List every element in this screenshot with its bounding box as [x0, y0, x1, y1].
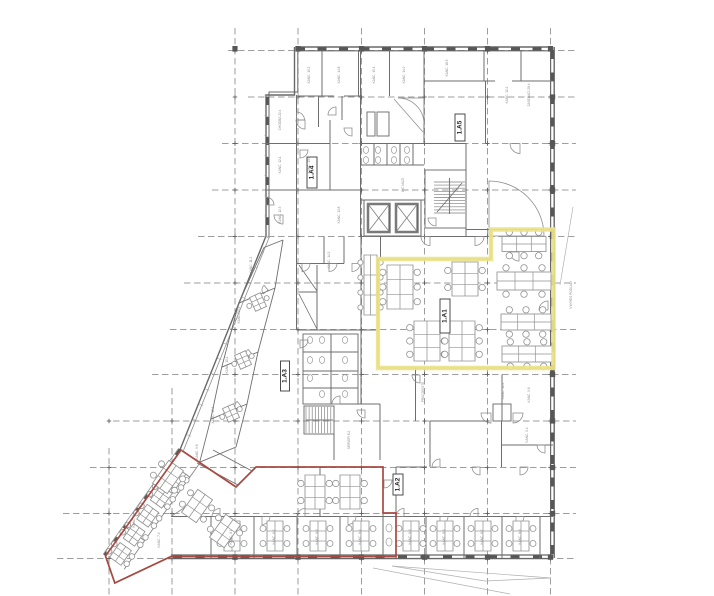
svg-text:KANC. 8.5: KANC. 8.5: [408, 529, 412, 544]
svg-text:KANC. 8.2: KANC. 8.2: [272, 529, 276, 544]
svg-text:1.A5: 1.A5: [457, 120, 464, 134]
svg-text:KANC. 12.2: KANC. 12.2: [505, 86, 509, 103]
svg-text:KANC. 12.3: KANC. 12.3: [278, 206, 282, 223]
svg-text:KANC. 8.6: KANC. 8.6: [442, 529, 446, 544]
svg-text:KANC. 9.8: KANC. 9.8: [195, 444, 199, 459]
svg-text:CHODBA 22.4: CHODBA 22.4: [278, 110, 282, 131]
svg-text:KANC. 13.6: KANC. 13.6: [307, 156, 311, 173]
svg-text:KANC. 10.8: KANC. 10.8: [237, 306, 241, 323]
svg-text:KANC. 8.3: KANC. 8.3: [315, 529, 319, 544]
svg-text:KANC. 9.4: KANC. 9.4: [525, 427, 529, 442]
svg-text:KANC. 9.6: KANC. 9.6: [527, 387, 531, 402]
svg-text:1.A1: 1.A1: [442, 309, 449, 323]
svg-text:ZASEDACI 28.4: ZASEDACI 28.4: [527, 83, 531, 106]
svg-text:KANC. 7.4: KANC. 7.4: [157, 532, 161, 547]
svg-text:KANC. 8.8: KANC. 8.8: [518, 529, 522, 544]
svg-text:KANC. 13.8: KANC. 13.8: [337, 206, 341, 223]
svg-text:KANC. 15.2: KANC. 15.2: [307, 66, 311, 83]
svg-text:VYKRES PODLAZI: VYKRES PODLAZI: [569, 281, 573, 309]
svg-text:KANC. 10.1: KANC. 10.1: [211, 406, 215, 423]
svg-text:1.A2: 1.A2: [395, 477, 402, 491]
svg-text:KANC. 8.4: KANC. 8.4: [358, 529, 362, 544]
svg-text:KANC. 10.4: KANC. 10.4: [225, 356, 229, 373]
svg-text:KANC. 15.1: KANC. 15.1: [372, 66, 376, 83]
svg-text:KANC. 8.7: KANC. 8.7: [480, 529, 484, 544]
svg-text:1.A3: 1.A3: [282, 369, 289, 383]
svg-text:KANC. 11.2: KANC. 11.2: [249, 256, 253, 273]
svg-text:KANC. 14.9: KANC. 14.9: [402, 66, 406, 83]
svg-text:KANC. 7.2: KANC. 7.2: [132, 512, 136, 527]
svg-text:WC MUZI: WC MUZI: [401, 178, 405, 192]
svg-text:KANC. 12.1: KANC. 12.1: [278, 156, 282, 173]
svg-text:KANC. 14.2: KANC. 14.2: [327, 251, 331, 268]
svg-text:SERVER 8.2: SERVER 8.2: [347, 431, 351, 450]
svg-text:KANC. 8.1: KANC. 8.1: [229, 529, 233, 544]
svg-text:KANC. 18.3: KANC. 18.3: [445, 59, 449, 76]
svg-text:KANC. 16.4: KANC. 16.4: [501, 382, 505, 399]
svg-text:PRACOVISTE: PRACOVISTE: [421, 382, 425, 403]
svg-text:KANC. 14.8: KANC. 14.8: [337, 66, 341, 83]
